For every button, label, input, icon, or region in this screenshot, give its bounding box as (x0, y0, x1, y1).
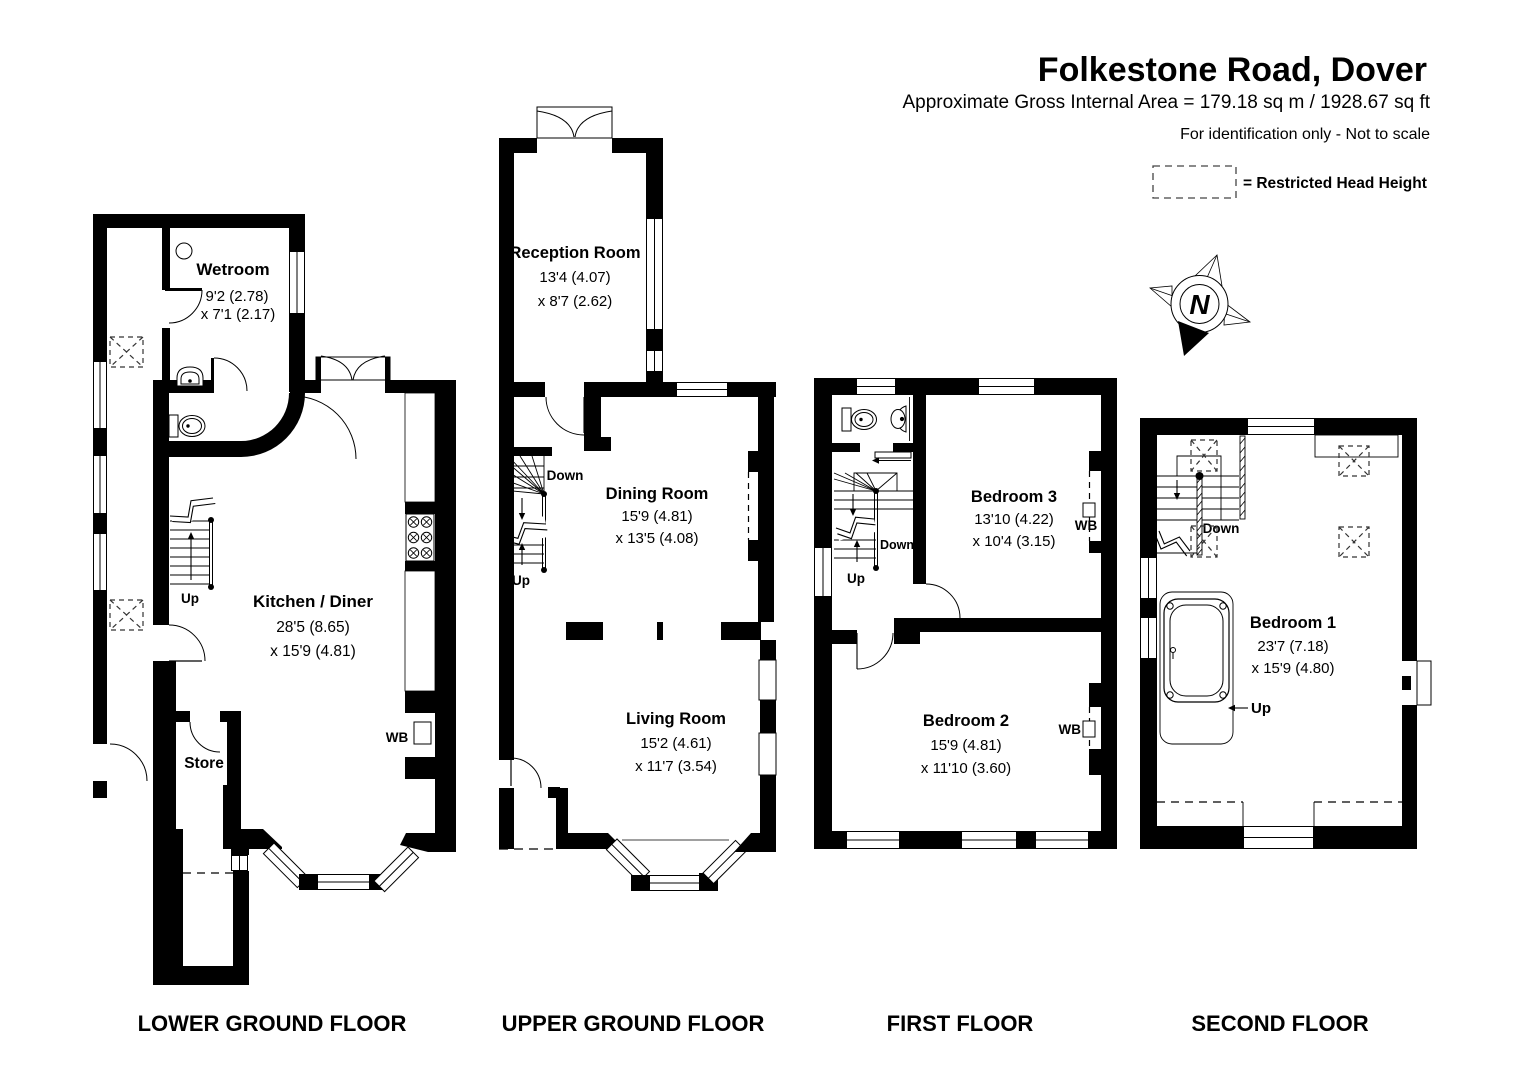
svg-text:Down: Down (1203, 521, 1240, 536)
svg-text:15'9 (4.81): 15'9 (4.81) (621, 508, 692, 525)
svg-text:23'7 (7.18): 23'7 (7.18) (1257, 638, 1328, 655)
svg-text:Up: Up (181, 591, 199, 606)
svg-text:Up: Up (1251, 700, 1271, 717)
svg-text:Up: Up (512, 573, 530, 588)
svg-text:Approximate Gross Internal Are: Approximate Gross Internal Area = 179.18… (902, 92, 1430, 113)
svg-text:Down: Down (880, 538, 914, 552)
svg-text:UPPER GROUND FLOOR: UPPER GROUND FLOOR (502, 1011, 765, 1036)
svg-text:9'2 (2.78): 9'2 (2.78) (206, 288, 269, 305)
svg-text:x 8'7 (2.62): x 8'7 (2.62) (538, 293, 613, 310)
svg-text:x 15'9 (4.80): x 15'9 (4.80) (1252, 660, 1335, 677)
svg-text:Folkestone Road, Dover: Folkestone Road, Dover (1038, 51, 1427, 89)
svg-text:Wetroom: Wetroom (196, 260, 269, 279)
svg-text:28'5 (8.65): 28'5 (8.65) (276, 619, 350, 636)
svg-text:x 11'7 (3.54): x 11'7 (3.54) (635, 758, 717, 775)
svg-text:SECOND FLOOR: SECOND FLOOR (1191, 1011, 1368, 1036)
svg-text:x 15'9 (4.81): x 15'9 (4.81) (270, 643, 356, 660)
svg-text:x 13'5 (4.08): x 13'5 (4.08) (616, 530, 699, 547)
svg-text:LOWER GROUND FLOOR: LOWER GROUND FLOOR (138, 1011, 407, 1036)
svg-text:FIRST FLOOR: FIRST FLOOR (887, 1011, 1034, 1036)
svg-text:x 11'10 (3.60): x 11'10 (3.60) (921, 760, 1011, 777)
svg-text:Up: Up (847, 571, 865, 586)
svg-text:WB: WB (386, 730, 409, 745)
svg-text:x 7'1 (2.17): x 7'1 (2.17) (201, 306, 276, 323)
svg-text:Kitchen / Diner: Kitchen / Diner (253, 592, 373, 611)
svg-text:15'2 (4.61): 15'2 (4.61) (640, 735, 711, 752)
svg-text:Bedroom 2: Bedroom 2 (923, 712, 1009, 730)
svg-text:Living Room: Living Room (626, 710, 726, 728)
svg-text:WB: WB (1075, 518, 1098, 533)
svg-text:Dining Room: Dining Room (606, 485, 709, 503)
svg-text:Bedroom 3: Bedroom 3 (971, 488, 1057, 506)
svg-text:Bedroom 1: Bedroom 1 (1250, 614, 1336, 632)
svg-text:N: N (1189, 289, 1210, 320)
svg-text:15'9 (4.81): 15'9 (4.81) (930, 737, 1001, 754)
svg-text:x 10'4 (3.15): x 10'4 (3.15) (973, 533, 1056, 550)
svg-text:13'4 (4.07): 13'4 (4.07) (539, 269, 610, 286)
svg-text:For identification only - Not: For identification only - Not to scale (1180, 126, 1430, 143)
svg-text:13'10 (4.22): 13'10 (4.22) (974, 511, 1054, 528)
svg-text:Reception Room: Reception Room (509, 244, 640, 262)
svg-text:Down: Down (547, 468, 584, 483)
svg-text:WB: WB (1059, 722, 1082, 737)
svg-text:= Restricted Head Height: = Restricted Head Height (1243, 175, 1427, 192)
svg-text:Store: Store (184, 755, 224, 772)
